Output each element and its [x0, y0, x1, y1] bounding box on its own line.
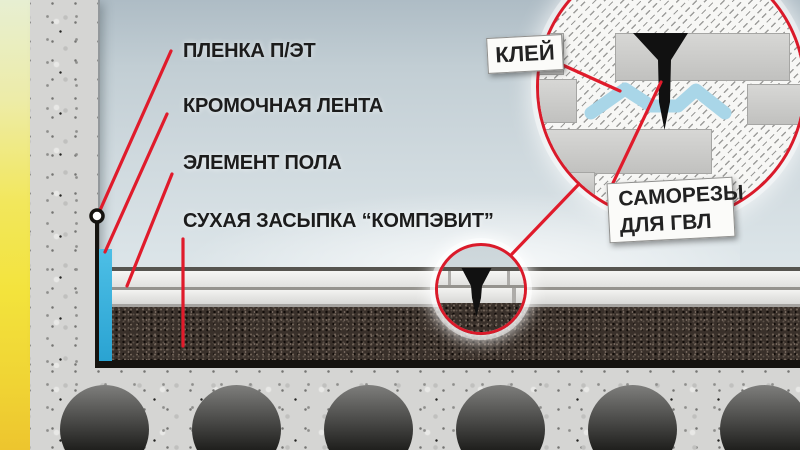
slab-hole: [720, 385, 800, 450]
slab-hole: [456, 385, 545, 450]
concrete-wall: [30, 0, 100, 368]
slab-hole: [324, 385, 413, 450]
label-pe-film: ПЛЕНКА П/ЭТ: [183, 40, 316, 63]
callout-glue-text: КЛЕЙ: [495, 39, 556, 68]
glue-zigzag-icon: [591, 89, 725, 113]
label-edge-tape: КРОМОЧНАЯ ЛЕНТА: [183, 95, 383, 118]
slab-hole: [192, 385, 281, 450]
label-floor-element: ЭЛЕМЕНТ ПОЛА: [183, 152, 342, 175]
slab-top-line: [95, 360, 800, 368]
screw-icon: [633, 33, 688, 130]
leader-line-edge-tape: [105, 114, 167, 252]
callout-screws-line2: ДЛЯ ГВЛ: [619, 207, 734, 240]
hollow-core-slab: [30, 368, 800, 450]
floor-construction-diagram: ПЛЕНКА П/ЭТ КРОМОЧНАЯ ЛЕНТА ЭЛЕМЕНТ ПОЛА…: [0, 0, 800, 450]
callout-glue: КЛЕЙ: [486, 34, 564, 74]
magnifier-circle-small: [435, 243, 527, 335]
slab-hole: [588, 385, 677, 450]
label-dry-fill: СУХАЯ ЗАСЫПКА “КОМПЭВИТ”: [183, 210, 494, 233]
edge-tape-strip: [99, 249, 112, 361]
leader-line-film: [97, 51, 171, 217]
screw-icon: [462, 268, 492, 317]
callout-screws: САМОРЕЗЫ ДЛЯ ГВЛ: [607, 177, 736, 244]
slab-hole: [60, 385, 149, 450]
screw-graphic-small: [438, 246, 524, 332]
yellow-edge-strip: [0, 0, 30, 450]
